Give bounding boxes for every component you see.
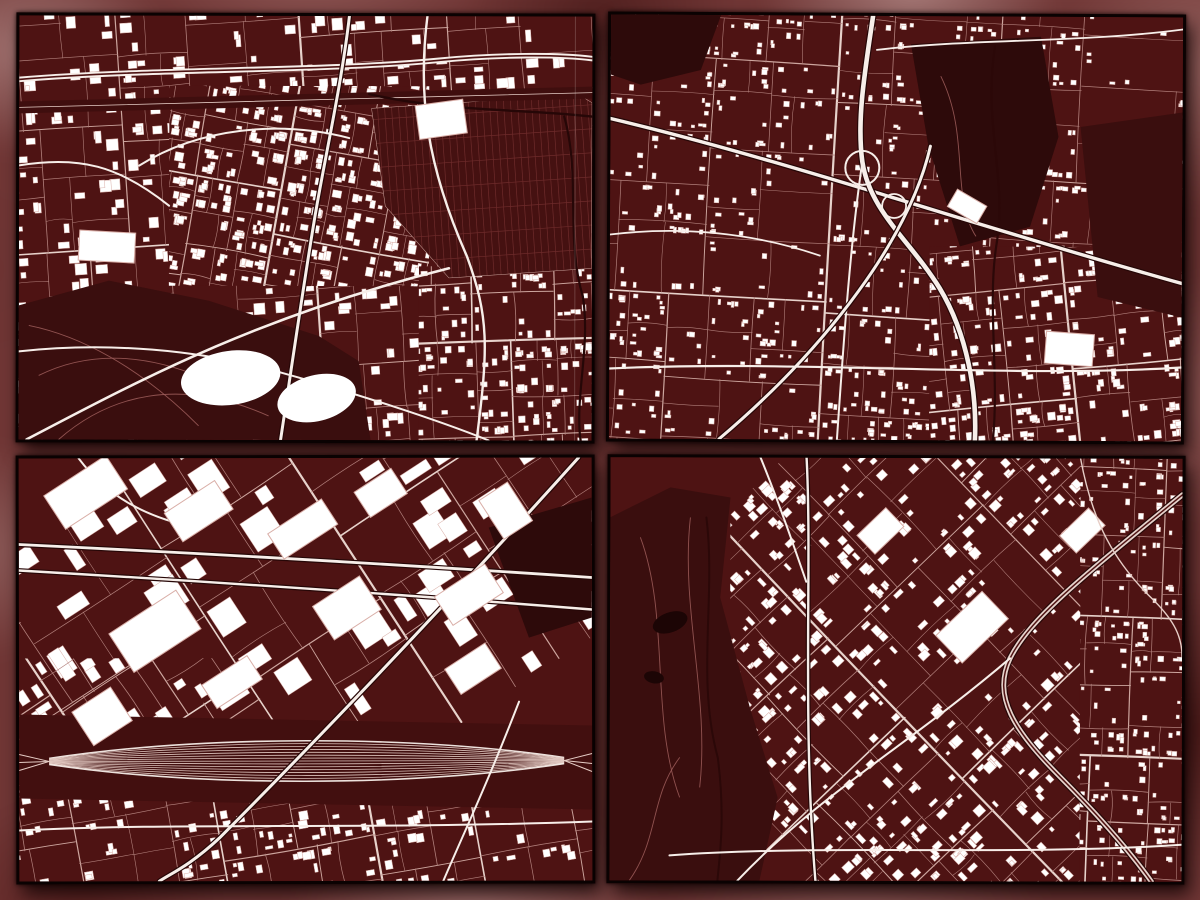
map-tile-bottom-left <box>16 454 596 884</box>
map-collage <box>0 0 1200 900</box>
street-map-canvas <box>609 457 1182 882</box>
street-map-canvas <box>19 15 593 440</box>
map-tile-bottom-right <box>606 454 1185 885</box>
map-tile-top-left <box>16 12 596 443</box>
street-map-canvas <box>19 458 593 882</box>
street-map-canvas <box>609 15 1183 442</box>
map-tile-top-right <box>606 11 1186 444</box>
